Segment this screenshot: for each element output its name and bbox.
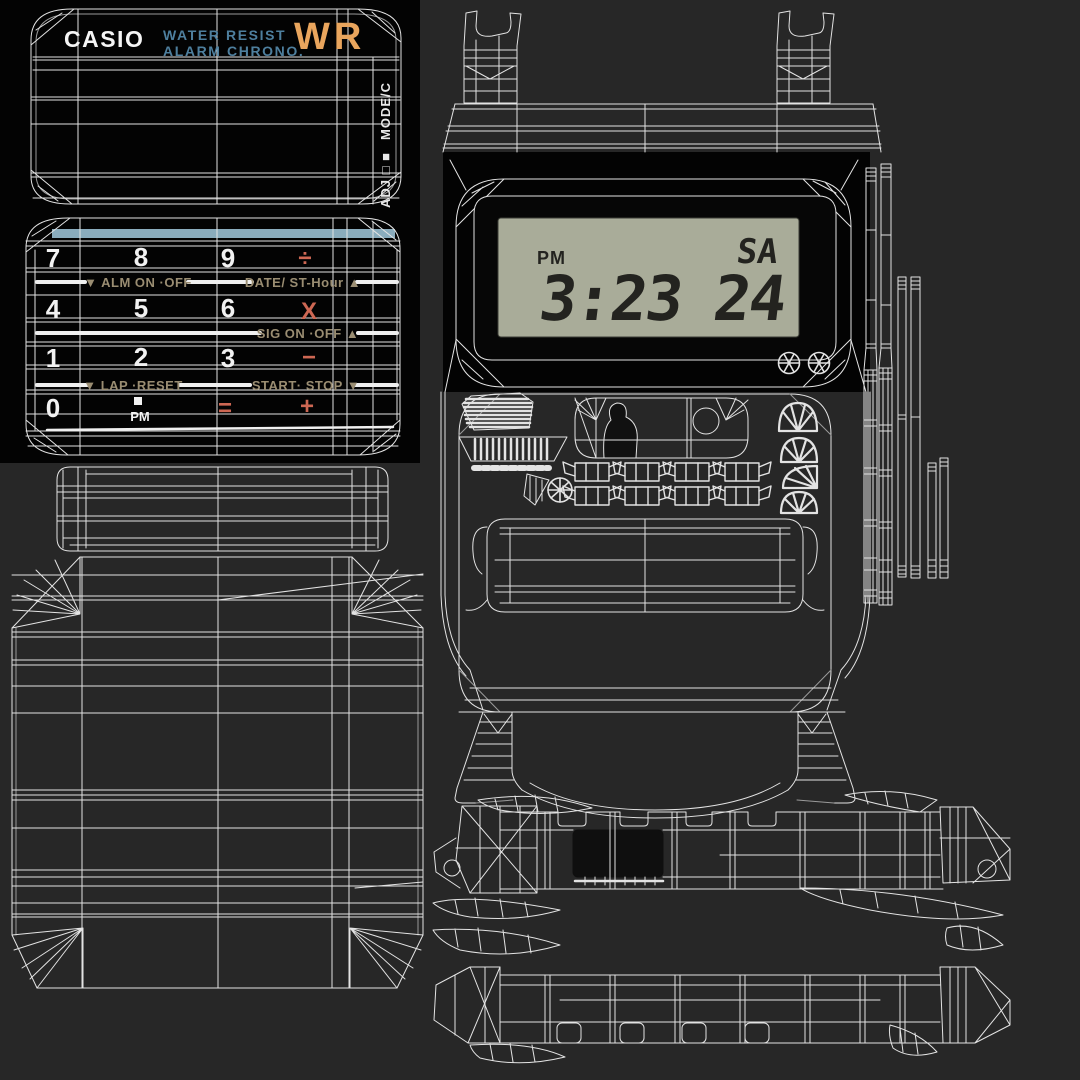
pm-label: PM: [130, 409, 150, 424]
texture-sheet: CASIO WATER RESIST ALARM CHRONO. WR MODE…: [0, 0, 1080, 1080]
watch-lug-wireframe: [443, 11, 881, 152]
casio-logo: CASIO: [64, 26, 144, 53]
adj-side-label: ADJ □ ■: [378, 152, 393, 208]
lcd-time: 3:23: [536, 262, 686, 335]
keypad-blue-bar: [52, 229, 395, 238]
key-0: 0: [46, 393, 60, 424]
wr-logo: WR: [294, 16, 365, 59]
key-5: 5: [134, 293, 148, 324]
key-1: 1: [46, 343, 60, 374]
key-9: 9: [221, 243, 235, 274]
button-row-1: [563, 462, 771, 481]
clasp-part-wireframe: [57, 467, 388, 551]
key-3: 3: [221, 343, 235, 374]
alarm-chrono-label: ALARM CHRONO.: [163, 43, 304, 59]
lcd-seconds: 24: [710, 262, 790, 335]
lap-reset-label: ▼ LAP ·RESET: [83, 378, 183, 393]
mode-side-label: MODE/C: [378, 82, 393, 140]
key-equals: =: [218, 395, 232, 423]
key-plus: +: [300, 393, 314, 421]
water-resist-label: WATER RESIST: [163, 27, 286, 43]
sig-on-off-label: SIG ON ·OFF ▲: [257, 326, 359, 341]
alarm-on-off-label: ▼ ALM ON ·OFF: [84, 275, 192, 290]
wireframe-canvas: [0, 0, 1080, 1080]
key-8: 8: [134, 242, 148, 273]
pm-square-indicator: [134, 397, 142, 405]
bottom-strap-lower: [433, 925, 1010, 1063]
button-row-2: [563, 486, 771, 505]
key-4: 4: [46, 294, 60, 325]
strap-edge-strips: [864, 164, 948, 605]
key-6: 6: [221, 293, 235, 324]
start-stop-label: START· STOP ▼: [252, 378, 360, 393]
key-divide: ÷: [298, 245, 311, 273]
bottom-strap-upper: [433, 791, 1010, 919]
key-2: 2: [134, 342, 148, 373]
strap-panel-wireframe: [12, 557, 423, 988]
arch-parts: [779, 403, 817, 513]
key-multiply: X: [301, 298, 317, 326]
date-st-hour-label: DATE/ ST-Hour ▲: [245, 275, 361, 290]
key-minus: −: [302, 344, 316, 372]
internal-parts-wireframe: [459, 393, 824, 612]
key-7: 7: [46, 243, 60, 274]
